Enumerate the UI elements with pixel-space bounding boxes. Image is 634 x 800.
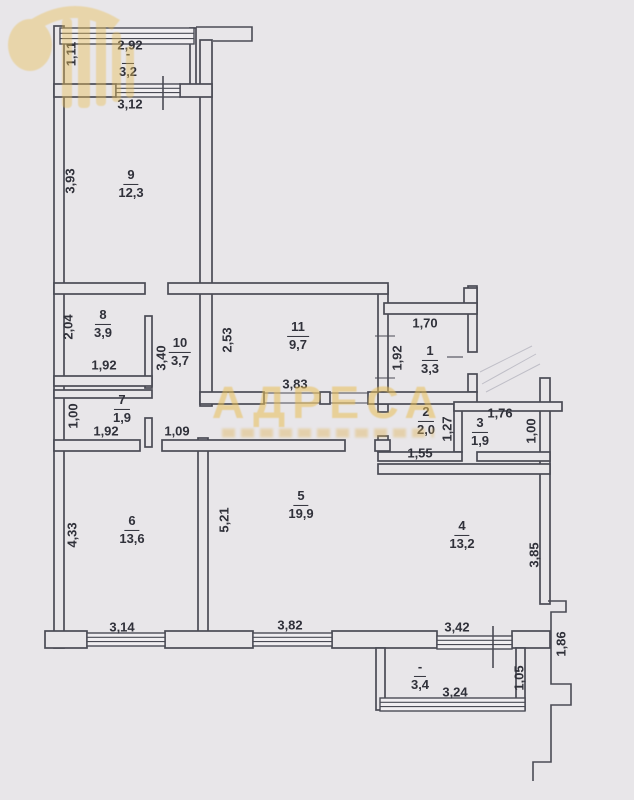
plan-drawing	[0, 0, 634, 800]
floor-plan: -3,2912,383,9103,771,9119,713,322,031,96…	[0, 0, 634, 800]
wall-rooms2-3-bottom-right	[477, 452, 550, 461]
wall-room7-right	[145, 418, 152, 447]
stairs-hatch	[480, 346, 540, 392]
wall-room8-bottom	[54, 376, 152, 386]
wall-room11-bottom-left	[200, 392, 264, 404]
wall-bottom-4	[512, 631, 550, 648]
wall-room11-bottom-pier	[320, 392, 330, 404]
window-balcony-top-railing	[60, 28, 194, 44]
contour-top-step	[196, 27, 252, 41]
wall-room9-bottom-left	[54, 283, 145, 294]
wall-left-outer	[54, 26, 64, 648]
window-room5	[253, 633, 332, 646]
wall-room1-top	[384, 303, 477, 314]
wall-room3-top	[454, 402, 562, 411]
wall-hall-bottom-mid	[162, 440, 345, 451]
wall-right-outer	[540, 378, 550, 604]
wall-rooms2-3-bottom-left	[378, 452, 462, 461]
window-room9	[116, 84, 180, 97]
wall-rooms5-6-divider	[198, 438, 208, 642]
wall-room7-top	[54, 390, 152, 398]
wall-room4-top	[378, 464, 550, 474]
wall-balcony-bottom-right	[180, 84, 212, 97]
wall-bottom-2	[165, 631, 253, 648]
window-room4	[437, 636, 512, 649]
wall-balcony-bottom-left	[54, 84, 116, 97]
window-balcony-bottom-railing	[380, 698, 525, 711]
wall-room1-right-lower	[468, 374, 477, 392]
wall-hall-bottom-right	[375, 440, 390, 451]
wall-bottom-1	[45, 631, 87, 648]
wall-hall-bottom-left	[54, 440, 140, 451]
wall-bottom-3	[332, 631, 437, 648]
walls	[45, 26, 562, 710]
contour-right-wing	[533, 601, 571, 781]
window-room6	[87, 633, 165, 646]
windows	[60, 28, 525, 711]
wall-room9-11-top-band	[168, 283, 388, 294]
